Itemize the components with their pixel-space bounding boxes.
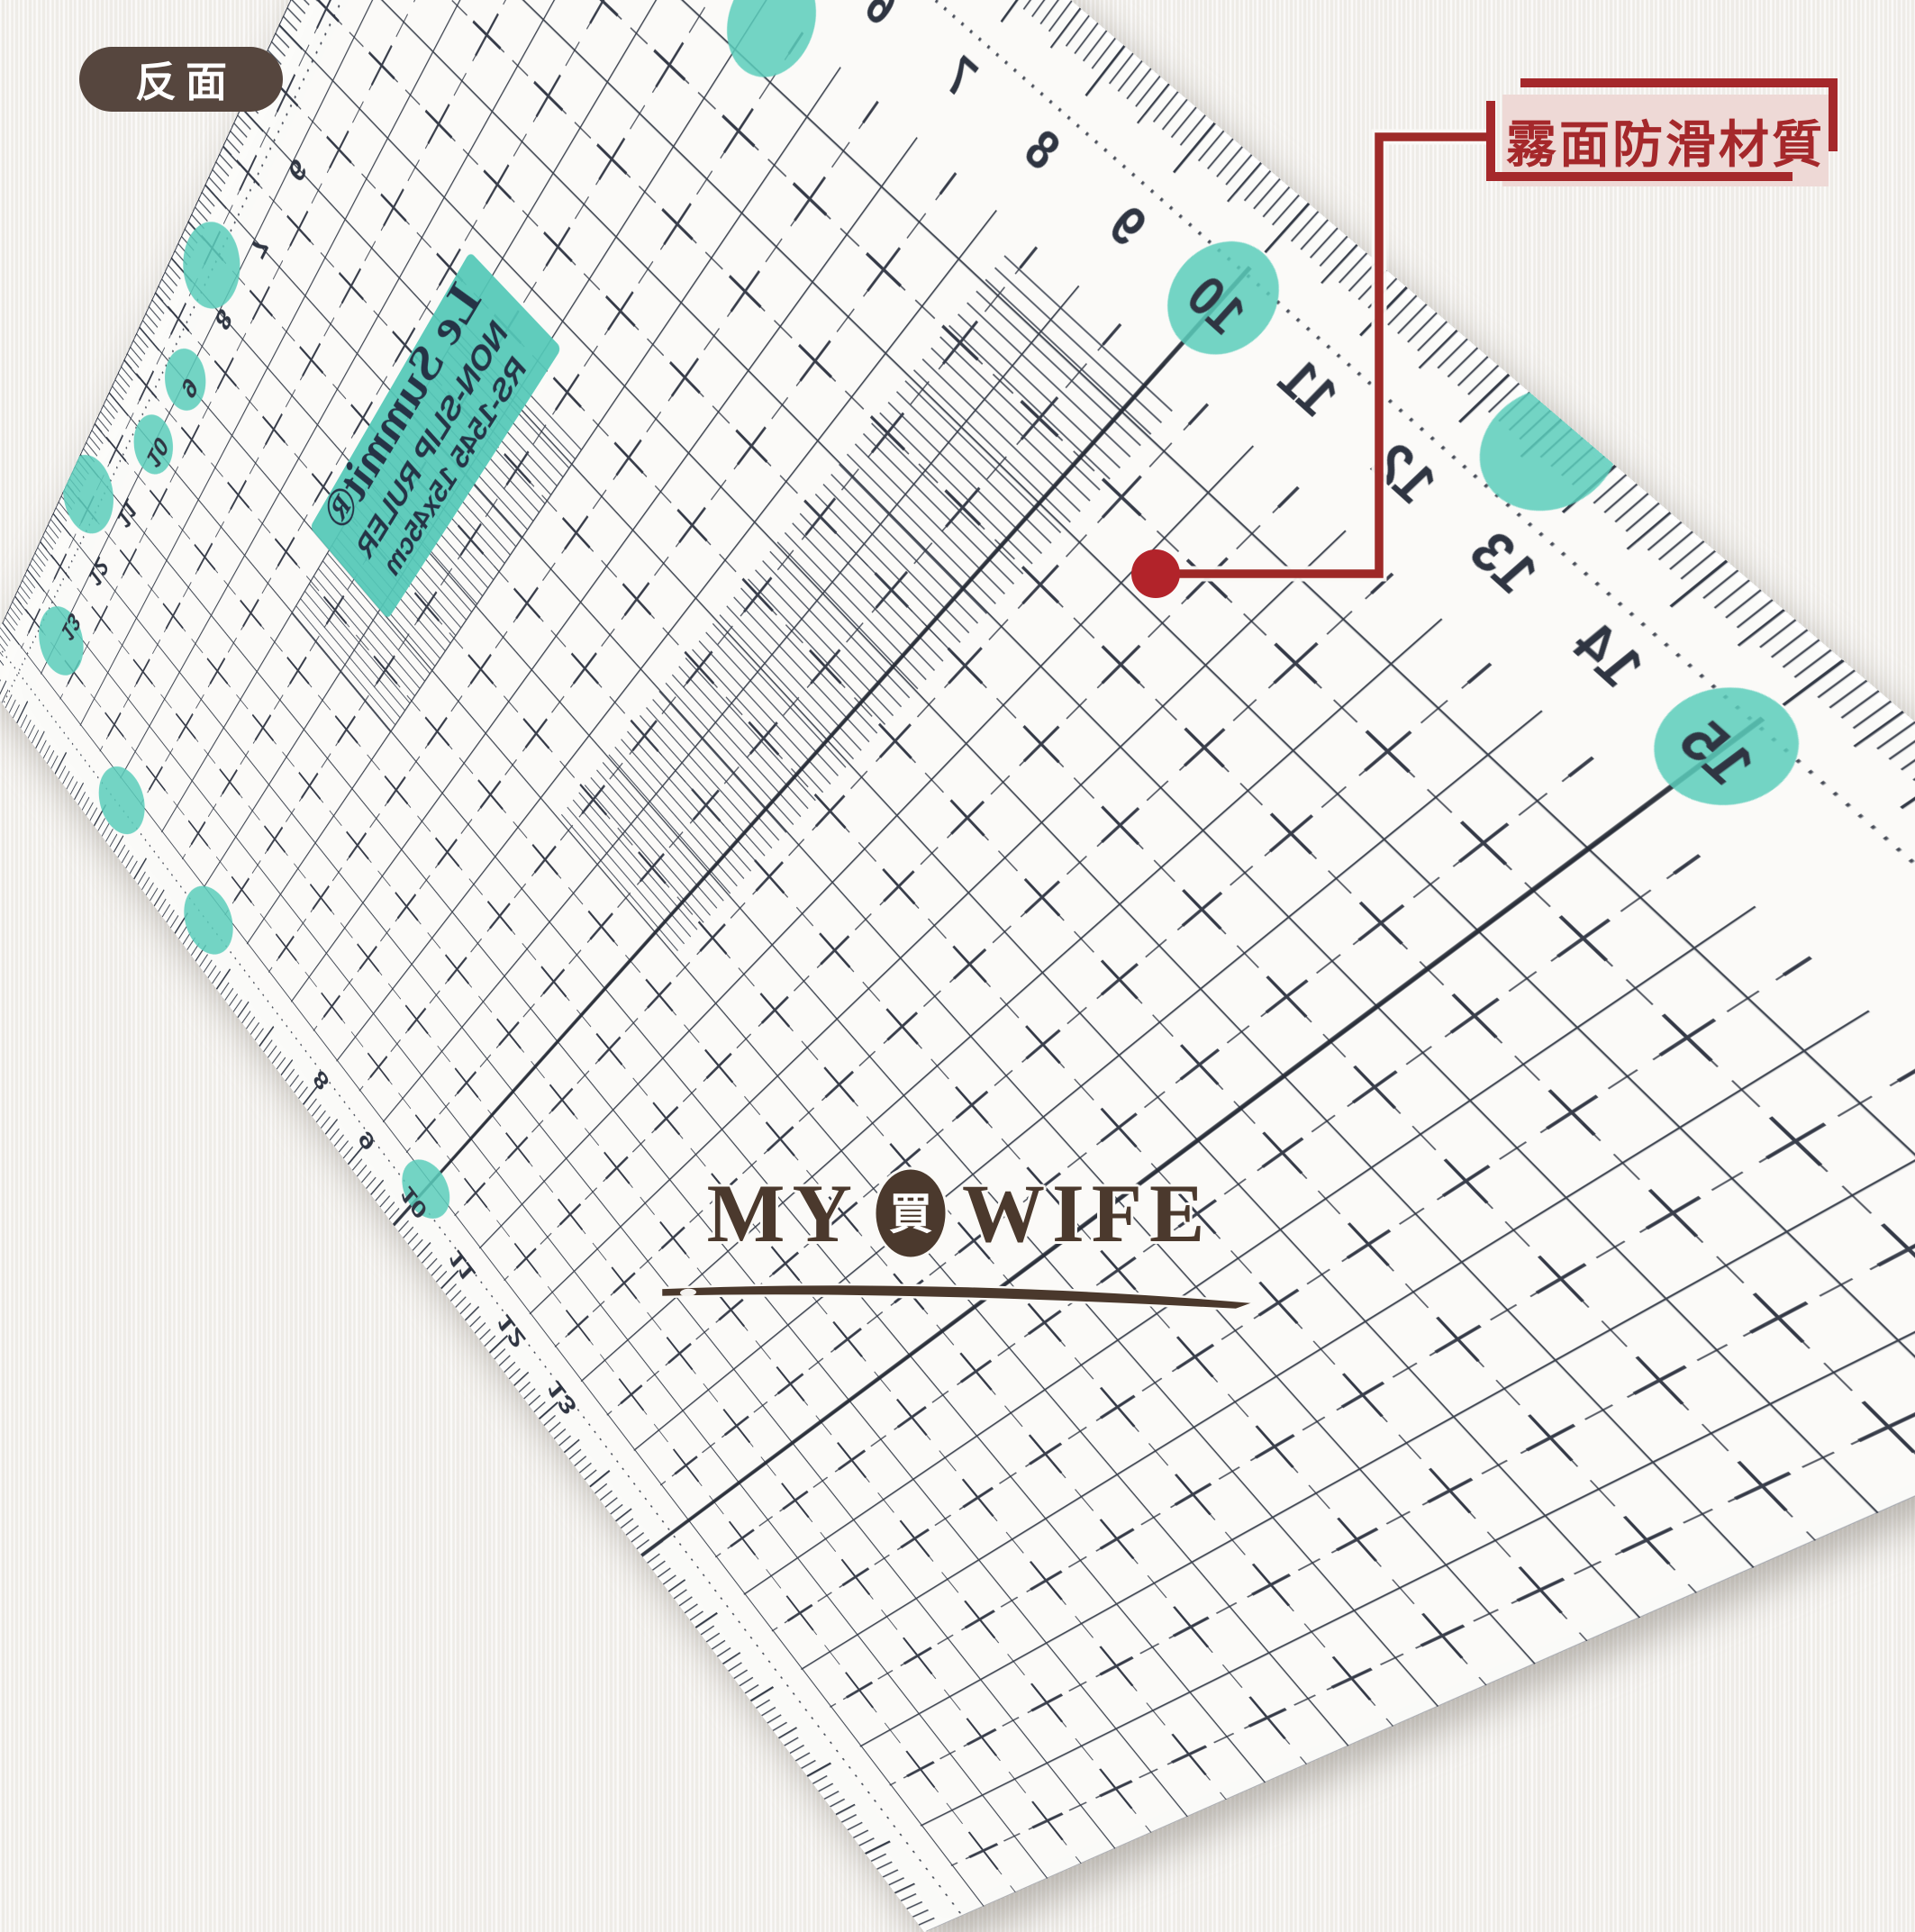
brand-logo-row: MY 買 WIFE [649,1166,1270,1261]
brand-logo: MY 買 WIFE [649,1166,1270,1317]
annotation: 霧面防滑材質 [1468,67,1870,204]
ruler-artwork: Le Summit® NON-SLIP RULER RS-1545 15x45c… [0,0,1915,1932]
back-side-badge-label: 反面 [126,50,236,109]
needle-icon [649,1275,1270,1317]
logo-emblem: 買 [872,1166,949,1261]
ruler-grid [2,0,1915,1907]
back-side-badge: 反面 [79,47,283,112]
product-photo: { "badge": { "label": "反面", "bg_color": … [0,0,1915,1380]
annotation-label: 霧面防滑材質 [1502,95,1829,186]
logo-word-left: MY [707,1172,859,1255]
quilting-ruler: Le Summit® NON-SLIP RULER RS-1545 15x45c… [0,0,1915,1932]
logo-emblem-character: 買 [889,1191,932,1238]
logo-word-right: WIFE [962,1172,1212,1255]
